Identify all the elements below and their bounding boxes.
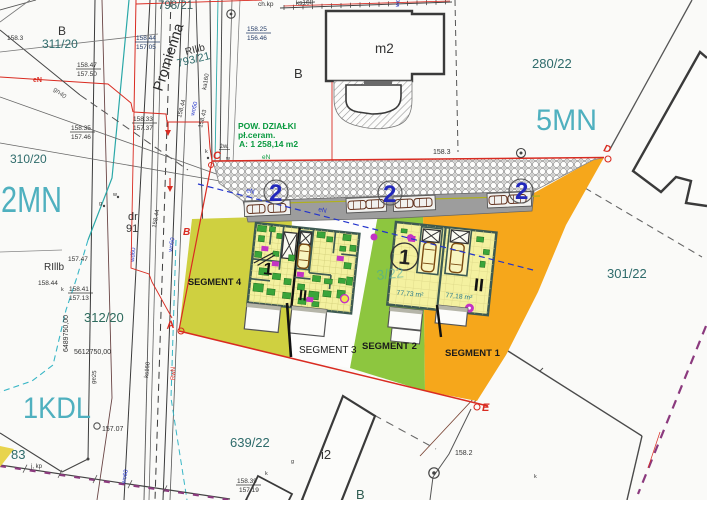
svg-text:A: 1 258,14 m2: A: 1 258,14 m2	[239, 139, 298, 149]
svg-text:157.37: 157.37	[133, 125, 153, 132]
svg-text:157.07: 157.07	[102, 426, 124, 433]
svg-text:301/22: 301/22	[607, 266, 647, 281]
svg-text:żw.: żw.	[220, 144, 229, 150]
svg-text:k: k	[205, 149, 208, 155]
svg-text:157.13: 157.13	[69, 295, 89, 302]
svg-text:157.05: 157.05	[136, 44, 156, 51]
svg-text:B: B	[294, 66, 303, 81]
svg-text:158.25: 158.25	[247, 26, 267, 33]
svg-text:dr: dr	[128, 211, 138, 223]
svg-text:k: k	[265, 471, 268, 477]
svg-text:m2: m2	[375, 41, 394, 56]
svg-text:eN: eN	[33, 77, 42, 84]
svg-text:RIllb: RIllb	[44, 262, 64, 273]
svg-text:i2: i2	[321, 447, 331, 462]
svg-text:w: w	[225, 156, 230, 162]
svg-text:B: B	[183, 227, 190, 238]
svg-text:wod: wod	[395, 0, 402, 8]
svg-text:SEGMENT 3: SEGMENT 3	[299, 345, 357, 356]
svg-text:2MN: 2MN	[1, 179, 62, 220]
svg-text:II: II	[473, 275, 485, 296]
svg-text:157.47: 157.47	[68, 256, 88, 263]
svg-text:SEGMENT 1: SEGMENT 1	[445, 348, 501, 359]
svg-text:w: w	[112, 192, 117, 198]
svg-text:SEGMENT 4: SEGMENT 4	[188, 277, 242, 287]
svg-text:158.33: 158.33	[133, 116, 153, 123]
svg-text:158.47: 158.47	[77, 62, 97, 69]
svg-text:157.19: 157.19	[239, 487, 259, 494]
svg-text:639/22: 639/22	[230, 435, 270, 450]
svg-text:156.46: 156.46	[247, 35, 267, 42]
svg-text:311/20: 311/20	[42, 37, 78, 51]
svg-text:ch.kp: ch.kp	[258, 1, 274, 8]
svg-text:eN: eN	[262, 154, 271, 161]
svg-text:798/21: 798/21	[158, 0, 193, 12]
svg-text:g: g	[99, 201, 102, 207]
svg-text:6489750,00: 6489750,00	[63, 315, 70, 352]
svg-text:158.35: 158.35	[71, 125, 91, 132]
svg-text:5612750,00: 5612750,00	[74, 349, 111, 356]
svg-text:1: 1	[262, 259, 273, 279]
svg-text:157.50: 157.50	[77, 71, 97, 78]
svg-text:II: II	[298, 287, 308, 305]
svg-text:j, kp: j, kp	[30, 464, 43, 470]
svg-text:158.39: 158.39	[237, 478, 257, 485]
svg-text:B: B	[58, 24, 66, 38]
svg-text:3/22: 3/22	[376, 264, 405, 283]
svg-text:158.3: 158.3	[433, 149, 451, 156]
svg-text:5MN: 5MN	[536, 104, 597, 137]
svg-text:ks160: ks160	[296, 0, 314, 7]
svg-text:1KDL: 1KDL	[23, 392, 91, 425]
svg-text:83: 83	[11, 447, 25, 462]
svg-text:2: 2	[515, 178, 528, 205]
svg-text:E: E	[482, 402, 490, 414]
svg-text:B: B	[356, 487, 365, 500]
svg-text:157.46: 157.46	[71, 134, 91, 141]
svg-text:158.41: 158.41	[69, 286, 89, 293]
svg-text:g: g	[291, 459, 294, 465]
svg-text:2: 2	[383, 181, 396, 208]
svg-text:2: 2	[269, 180, 282, 207]
svg-text:280/22: 280/22	[532, 56, 572, 71]
svg-text:RwN: RwN	[171, 367, 177, 380]
svg-text:158.2: 158.2	[455, 450, 473, 457]
svg-text:91: 91	[126, 223, 138, 235]
svg-text:C: C	[213, 150, 222, 162]
svg-text:158.44: 158.44	[38, 280, 58, 287]
svg-text:k: k	[61, 287, 64, 293]
svg-text:k: k	[534, 474, 537, 480]
svg-text:158.44: 158.44	[136, 35, 156, 42]
svg-text:310/20: 310/20	[10, 152, 47, 166]
svg-text:312/20: 312/20	[84, 310, 124, 325]
svg-text:158.3: 158.3	[7, 35, 24, 42]
svg-text:SEGMENT 2: SEGMENT 2	[362, 341, 417, 352]
